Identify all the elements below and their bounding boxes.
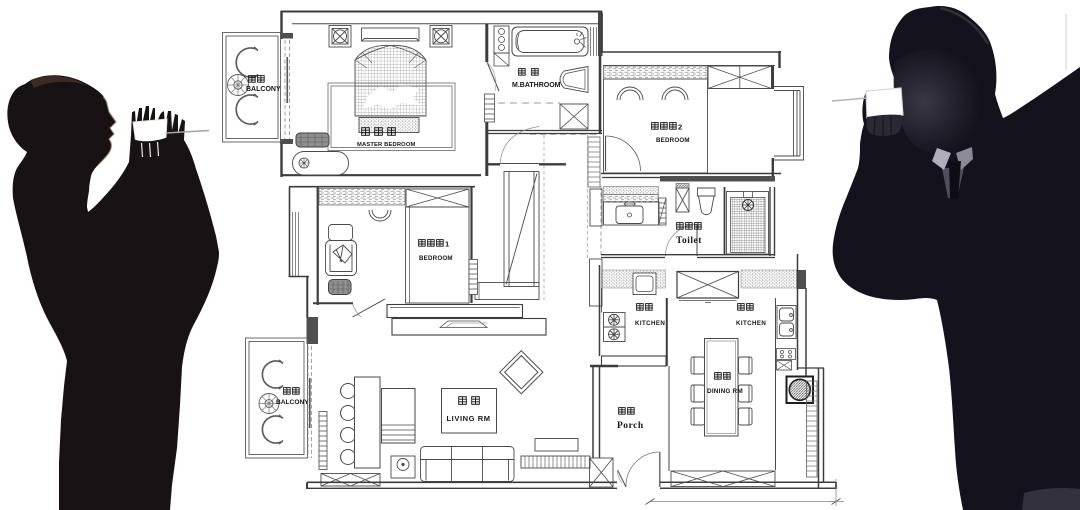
svg-text:1: 1 [445,240,449,249]
svg-text:BEDROOM: BEDROOM [656,137,690,144]
svg-text:LIVING RM: LIVING RM [447,414,491,423]
svg-text:M.BATHROOM: M.BATHROOM [512,82,561,89]
svg-text:KITCHEN: KITCHEN [736,320,766,327]
svg-text:DINING RM: DINING RM [707,388,743,395]
svg-text:BEDROOM: BEDROOM [419,255,453,262]
svg-text:KITCHEN: KITCHEN [635,320,665,327]
svg-text:Porch: Porch [617,421,644,431]
svg-text:BALCONY: BALCONY [276,399,309,406]
svg-text:MASTER BEDROOM: MASTER BEDROOM [357,142,415,148]
svg-text:2: 2 [678,123,682,132]
svg-text:Toilet: Toilet [676,236,702,246]
svg-text:BALCONY: BALCONY [246,86,281,93]
